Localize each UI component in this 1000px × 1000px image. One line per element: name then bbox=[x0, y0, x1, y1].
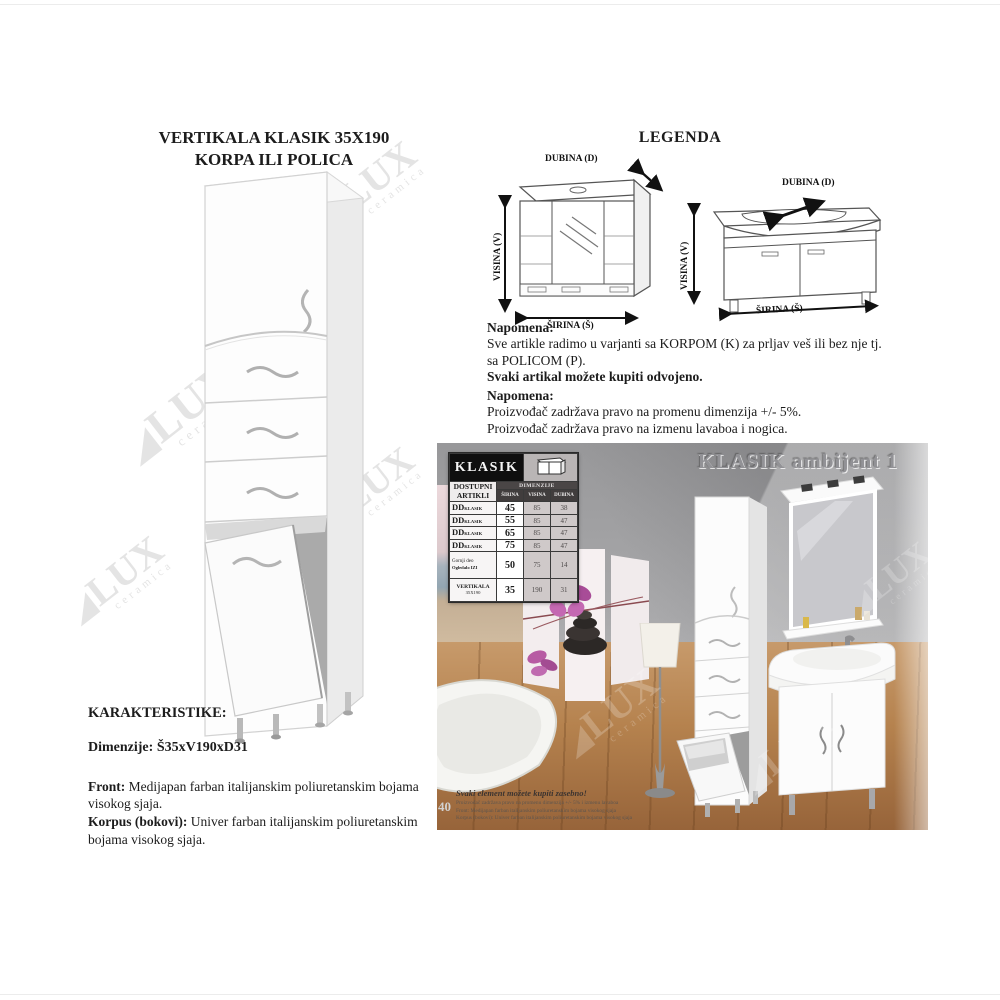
lux-watermark: ◢LUXceramica bbox=[60, 531, 176, 636]
note-line: Proizvođač zadržava pravo na izmenu lava… bbox=[487, 421, 937, 437]
mirror-cabinet-sketch-icon bbox=[492, 156, 667, 331]
dimensions-label: Dimenzije: bbox=[88, 740, 153, 755]
height-label: VISINA (V) bbox=[493, 233, 503, 281]
lux-logo-icon: ◢ bbox=[61, 585, 103, 629]
caption-bold-line: Svaki element možete kupiti zasebno! bbox=[456, 787, 632, 800]
korpus-line: Korpus (bokovi): Univer farban italijans… bbox=[88, 813, 454, 849]
scene-vertikala-cabinet bbox=[675, 495, 775, 820]
depth-label: DUBINA (D) bbox=[782, 178, 835, 188]
note-dimensions: Napomena: Proizvođač zadržava pravo na p… bbox=[487, 388, 937, 437]
note-heading: Napomena: bbox=[487, 320, 937, 336]
dimenzije-header: DIMENZIJE bbox=[497, 482, 578, 490]
ambient-photo: ◢LUXceramica ◢LUXceramica ◢LUXceramica K… bbox=[437, 443, 928, 830]
depth-label: DUBINA (D) bbox=[545, 154, 598, 164]
note-korpa-polica: Napomena: Sve artikle radimo u varjanti … bbox=[487, 320, 937, 386]
legend-vanity-diagram: DUBINA (D) VISINA (V) ŠIRINA (Š) bbox=[664, 172, 899, 322]
right-wall-light bbox=[894, 443, 928, 830]
table-row: DDKLASIK 55 85 47 bbox=[450, 514, 578, 527]
legend-mirror-diagram: DUBINA (D) VISINA (V) ŠIRINA (Š) bbox=[492, 156, 667, 331]
caption-line: Proizvođač zadržava pravo na promenu dim… bbox=[456, 800, 632, 808]
table-row: DDKLASIK 75 85 47 bbox=[450, 539, 578, 552]
height-label: VISINA (V) bbox=[680, 242, 690, 290]
note-heading: Napomena: bbox=[487, 388, 937, 404]
catalog-page: ◢LUXceramica ◢LUXceramica ◢LUXceramica ◢… bbox=[0, 0, 1000, 1000]
scene-sink-vanity bbox=[765, 635, 899, 821]
scene-mirror-unit bbox=[775, 471, 890, 646]
col-header-visina: VISINA bbox=[524, 490, 551, 502]
korpus-label: Korpus (bokovi): bbox=[88, 814, 187, 829]
cabinet-icon-cell bbox=[524, 454, 578, 482]
note-line-bold: Svaki artikal možete kupiti odvojeno. bbox=[487, 369, 937, 385]
note-line: sa POLICOM (P). bbox=[487, 353, 937, 369]
note-line: Sve artikle radimo u varjanti sa KORPOM … bbox=[487, 336, 937, 352]
cabinet-icon bbox=[534, 454, 568, 476]
vanity-sketch-icon bbox=[664, 172, 899, 322]
page-top-edge bbox=[0, 4, 1000, 5]
dimensions-line: Dimenzije: Š35xV190xD31 bbox=[88, 739, 454, 757]
page-number: 40 bbox=[438, 799, 451, 815]
lux-logo-icon: ◢ bbox=[117, 420, 165, 470]
col-header-sirina: ŠIRINA bbox=[497, 490, 524, 502]
artikli-header: DOSTUPNIARTIKLI bbox=[450, 482, 497, 502]
note-line: Proizvođač zadržava pravo na promenu dim… bbox=[487, 404, 937, 420]
table-row: Gornji deoOgledalo IZI 50 75 14 bbox=[450, 552, 578, 579]
ambient-title: KLASIK ambijent 1 bbox=[665, 449, 928, 474]
table-row: DDKLASIK 65 85 47 bbox=[450, 527, 578, 540]
page-bottom-edge bbox=[0, 994, 1000, 995]
caption-line: Korpus (bokovi): Univer farban italijans… bbox=[456, 815, 632, 823]
characteristics-heading: KARAKTERISTIKE: bbox=[88, 704, 454, 723]
vertikala-cabinet-image bbox=[175, 164, 410, 746]
spec-table: KLASIK DOSTUPNIARTIKLI DIMENZIJE ŠIR bbox=[449, 453, 578, 602]
col-header-dubina: DUBINA bbox=[551, 490, 578, 502]
front-text: Medijapan farban italijanskim poliuretan… bbox=[88, 779, 419, 812]
front-label: Front: bbox=[88, 779, 125, 794]
photo-caption: Svaki element možete kupiti zasebno! Pro… bbox=[456, 787, 632, 823]
table-row: DDKLASIK 45 85 38 bbox=[450, 502, 578, 515]
product-title-line1: VERTIKALA KLASIK 35X190 bbox=[118, 127, 430, 149]
characteristics-block: KARAKTERISTIKE: Dimenzije: Š35xV190xD31 … bbox=[88, 704, 454, 849]
front-line: Front: Medijapan farban italijanskim pol… bbox=[88, 778, 454, 814]
legend-heading: LEGENDA bbox=[560, 129, 800, 147]
table-row: VERTIKALA35X190 35 190 31 bbox=[450, 579, 578, 602]
spec-table-title: KLASIK bbox=[450, 454, 524, 482]
dimensions-value: Š35xV190xD31 bbox=[157, 740, 248, 755]
